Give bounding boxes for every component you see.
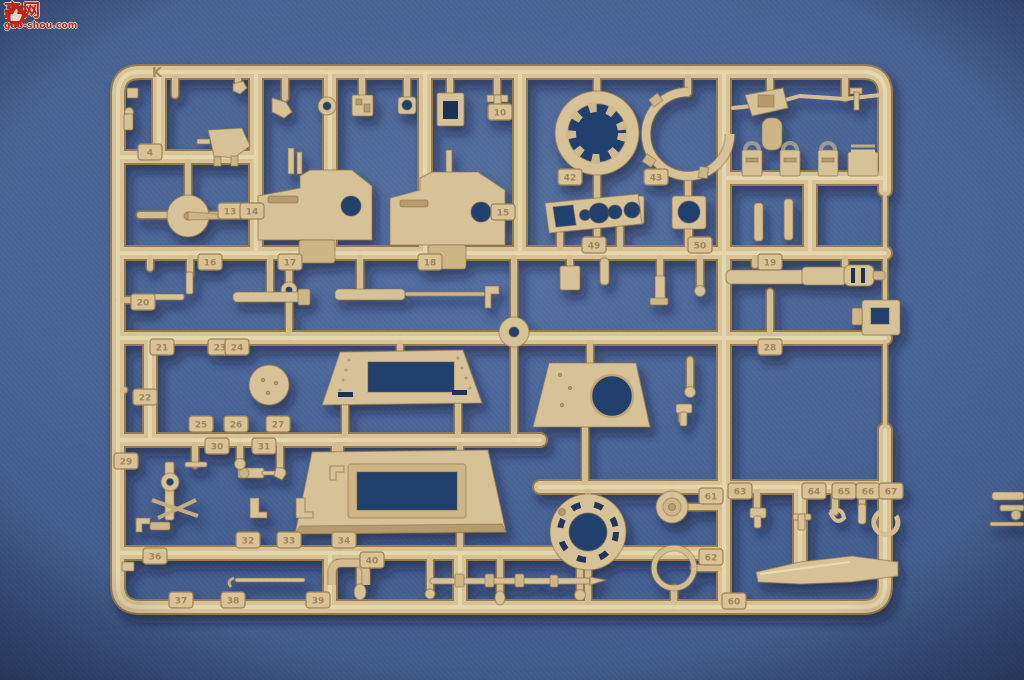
part-tab-number: 21 xyxy=(156,344,169,354)
part-tab-number: 37 xyxy=(175,597,188,607)
part-hub-wheel xyxy=(656,491,688,523)
part-tab-number: 42 xyxy=(564,174,577,184)
part-tab-number: 63 xyxy=(734,488,747,498)
watermark-logo: 高 网 gao-shou.com xyxy=(4,3,90,31)
part-square-ring xyxy=(672,196,706,229)
part-pulley xyxy=(499,317,529,347)
sprue-letter: K xyxy=(152,66,163,81)
thumb-up-gear-icon xyxy=(4,3,28,27)
part-tab-number: 49 xyxy=(588,242,601,252)
part-tab-number: 27 xyxy=(272,421,285,431)
part-roof-panel-rect xyxy=(322,350,482,405)
part-tab-number: 29 xyxy=(120,458,133,468)
part-tab-number: 20 xyxy=(137,299,150,309)
part-tab-number: 15 xyxy=(497,209,510,219)
part-tab-number: 28 xyxy=(764,344,777,354)
part-tab-number: 24 xyxy=(231,344,244,354)
part-tab-number: 39 xyxy=(312,597,325,607)
part-tab-number: 10 xyxy=(494,109,507,119)
part-tab-number: 43 xyxy=(650,174,663,184)
part-tab-number: 30 xyxy=(211,443,224,453)
part-tab-number: 50 xyxy=(694,242,707,252)
part-tab-number: 40 xyxy=(366,557,379,567)
part-tab-number: 62 xyxy=(705,554,718,564)
part-roof-panel-circle xyxy=(533,363,650,427)
part-tab-number: 67 xyxy=(885,488,898,498)
part-tab-number: 25 xyxy=(195,421,208,431)
part-cylinder-b xyxy=(784,199,793,240)
part-superstructure-tub xyxy=(295,450,506,534)
part-tab-number: 17 xyxy=(284,259,297,269)
part-tab-number: 14 xyxy=(246,208,259,218)
part-tab-number: 34 xyxy=(338,537,351,547)
part-tab-number: 22 xyxy=(139,394,152,404)
part-toothed-ring xyxy=(555,91,639,175)
part-tab-number: 19 xyxy=(764,259,777,269)
part-round-hatch xyxy=(249,365,289,405)
part-tab-number: 38 xyxy=(227,597,240,607)
part-slotted-ring xyxy=(550,494,626,570)
part-tab-number: 18 xyxy=(424,259,437,269)
part-tab-number: 31 xyxy=(258,443,271,453)
part-tab-number: 13 xyxy=(224,208,237,218)
sprue-photo-svg: 4101314154243495016171819202123242822252… xyxy=(0,0,1024,680)
part-tab-number: 36 xyxy=(149,553,162,563)
part-tab-number: 66 xyxy=(862,488,875,498)
part-cylinder-a xyxy=(754,203,763,241)
part-tab-number: 16 xyxy=(204,259,217,269)
part-tab-number: 26 xyxy=(230,421,243,431)
part-tab-number: 23 xyxy=(214,344,227,354)
part-tab-number: 65 xyxy=(838,488,851,498)
part-tab-number: 60 xyxy=(728,598,741,608)
part-tab-number: 32 xyxy=(242,537,255,547)
part-tab-number: 64 xyxy=(808,488,821,498)
photo-of-model-kit-sprue: 4101314154243495016171819202123242822252… xyxy=(0,0,1024,680)
part-tab-number: 61 xyxy=(705,493,718,503)
part-tab-number: 33 xyxy=(283,537,296,547)
part-tab-number: 4 xyxy=(147,149,153,159)
